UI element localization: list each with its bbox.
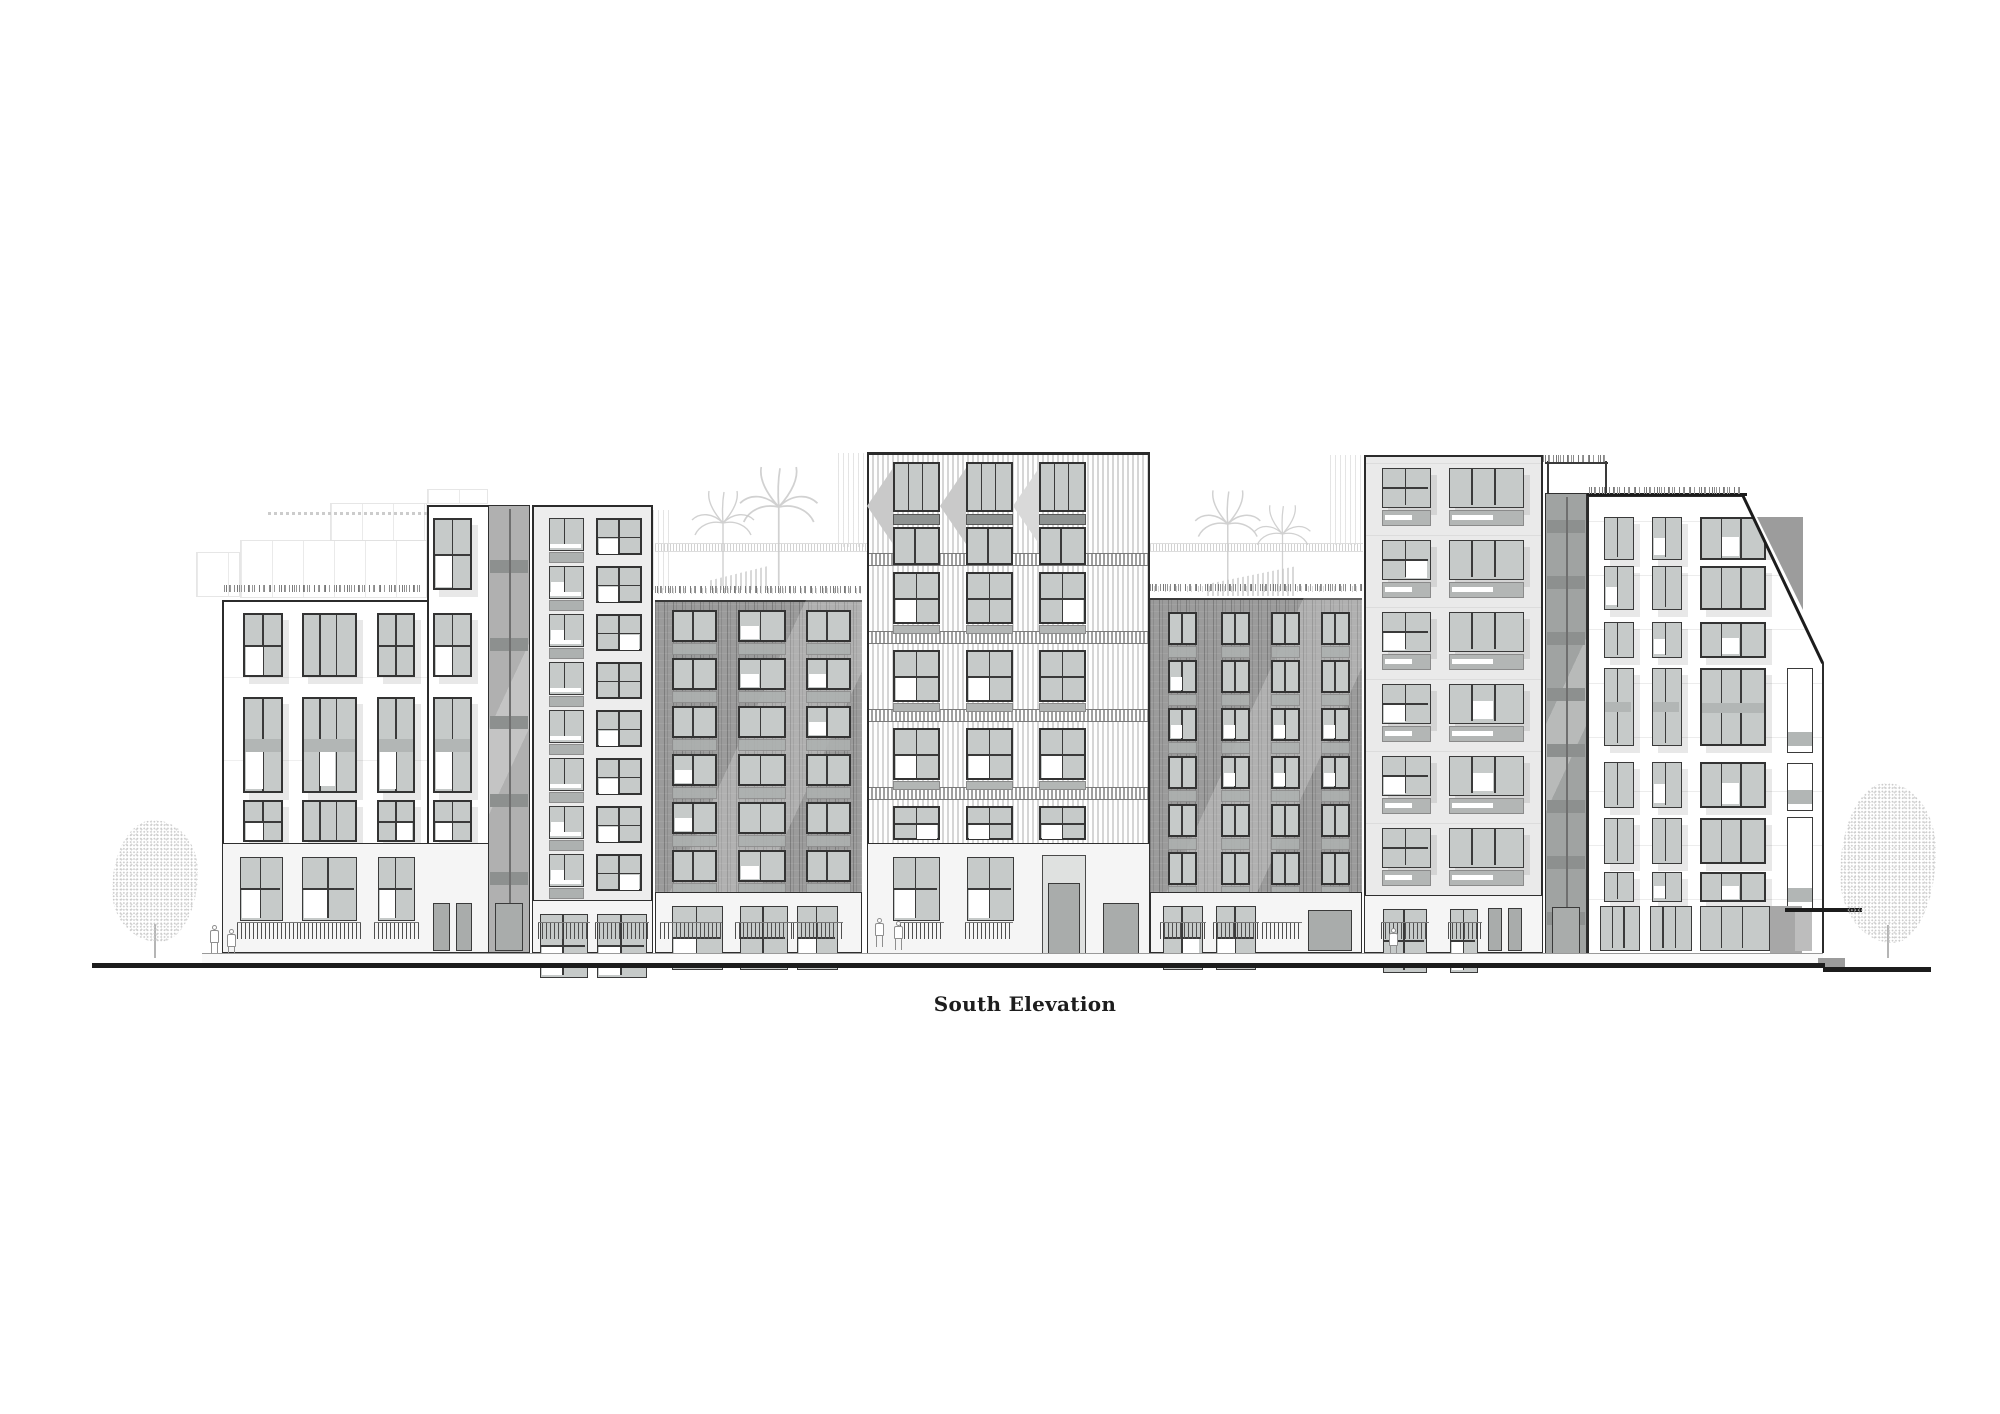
balcony-band <box>1449 726 1524 742</box>
window <box>1168 852 1197 885</box>
window <box>738 610 786 642</box>
window <box>1168 756 1197 789</box>
window-pane <box>1665 873 1667 899</box>
window <box>1039 462 1086 512</box>
window-pane <box>550 832 581 836</box>
balcony-slot <box>1385 515 1412 520</box>
window <box>549 806 584 839</box>
window <box>1221 612 1250 645</box>
window-pane <box>809 722 826 735</box>
window <box>549 854 584 887</box>
window-spandrel <box>1271 646 1300 658</box>
window-spandrel <box>806 835 851 847</box>
window-spandrel <box>1271 790 1300 802</box>
window-pane <box>1665 623 1667 655</box>
window-pane <box>1334 662 1336 691</box>
window-pane <box>436 556 452 587</box>
window-spandrel <box>1221 694 1250 706</box>
window-pane <box>1234 854 1236 883</box>
window <box>893 857 940 921</box>
window-pane <box>1612 907 1614 948</box>
window-pane <box>760 756 762 784</box>
core-mullion <box>509 509 511 949</box>
window-spandrel <box>672 787 717 799</box>
window-spandrel <box>1168 742 1197 754</box>
ghost-palm-tree <box>735 457 823 588</box>
window-band <box>893 514 940 525</box>
window-pane <box>1041 676 1084 678</box>
window-pane <box>692 708 694 736</box>
window-spandrel <box>1321 790 1350 802</box>
window-sill-band <box>966 703 1013 712</box>
window-spandrel <box>1221 646 1250 658</box>
window <box>806 754 851 786</box>
window-pane <box>1471 829 1473 865</box>
window-spandrel <box>1221 790 1250 802</box>
window-pane <box>1665 518 1667 557</box>
window-pane <box>1617 567 1619 607</box>
window-pane <box>981 464 983 510</box>
window-pane <box>1494 757 1496 793</box>
window-spandrel <box>738 739 786 751</box>
window <box>966 806 1013 840</box>
window-pane <box>741 866 759 879</box>
window-spandrel <box>806 787 851 799</box>
balcony-slot <box>1385 587 1412 592</box>
window-pane <box>908 464 910 510</box>
window <box>1449 540 1524 580</box>
window <box>596 518 642 555</box>
window-pane <box>1654 639 1665 654</box>
window-pane <box>692 852 694 880</box>
sidewalk-strip <box>202 953 1823 963</box>
window-pane <box>826 660 828 688</box>
window-sill-band <box>966 625 1013 634</box>
window <box>893 806 940 840</box>
window <box>1221 852 1250 885</box>
window <box>1449 612 1524 652</box>
window-pane <box>760 660 762 688</box>
window <box>1271 612 1300 645</box>
window-spandrel <box>672 643 717 655</box>
window-spandrel <box>738 835 786 847</box>
balcony-slot <box>1452 587 1493 592</box>
window-pane <box>968 598 1011 600</box>
entrance-door <box>1488 908 1502 951</box>
balcony-band <box>1449 582 1524 598</box>
person-part <box>210 930 219 943</box>
street-fence <box>237 922 301 939</box>
window-pane <box>741 674 759 687</box>
window-pane <box>435 739 470 752</box>
window-spandrel <box>549 552 584 563</box>
window-pane <box>969 890 989 918</box>
street-fence <box>735 922 793 939</box>
window-spandrel <box>549 888 584 899</box>
ground-line <box>92 963 1825 968</box>
window-pane <box>1284 614 1286 643</box>
window-pane <box>599 779 618 794</box>
window <box>596 710 642 747</box>
window-pane <box>379 645 413 647</box>
window-spandrel <box>1221 838 1250 850</box>
ghost-outline <box>330 503 427 541</box>
window <box>738 706 786 738</box>
window-pane <box>1181 758 1183 787</box>
window <box>302 613 357 677</box>
window <box>1449 468 1524 508</box>
window <box>1271 756 1300 789</box>
window <box>1700 566 1766 610</box>
balcony-slot <box>1452 659 1493 664</box>
window <box>377 697 415 793</box>
window-band <box>1039 514 1086 525</box>
window <box>1271 708 1300 741</box>
window <box>377 613 415 677</box>
window-pane <box>1060 529 1062 563</box>
window-pane <box>1788 888 1812 902</box>
window <box>433 518 472 590</box>
window-pane <box>1494 541 1496 577</box>
window <box>1168 804 1197 837</box>
window-pane <box>1042 756 1062 778</box>
window <box>1600 906 1640 951</box>
window-spandrel <box>738 691 786 703</box>
ghost-outline <box>427 489 488 504</box>
window <box>596 758 642 795</box>
balcony-slot <box>1452 515 1493 520</box>
window-pane <box>896 756 916 778</box>
window-pane <box>1224 725 1235 738</box>
bay-chevron <box>1013 468 1039 544</box>
window-pane <box>246 647 263 675</box>
window <box>1271 852 1300 885</box>
window-pane <box>1675 907 1677 948</box>
window-pane <box>1494 829 1496 865</box>
window <box>302 697 357 793</box>
window <box>302 800 357 842</box>
window-pane <box>550 640 581 644</box>
window-pane <box>1654 538 1665 556</box>
window-pane <box>599 827 618 842</box>
window <box>1221 660 1250 693</box>
person-part <box>875 923 884 936</box>
window-pane <box>1740 874 1742 900</box>
window <box>672 610 717 642</box>
window-spandrel <box>1271 742 1300 754</box>
window <box>1650 906 1692 951</box>
window-pane <box>1623 907 1625 948</box>
window-pane <box>1662 907 1664 948</box>
window-spandrel <box>806 643 851 655</box>
window-spandrel <box>549 600 584 611</box>
window-pane <box>380 890 395 918</box>
window-pane <box>1617 873 1619 899</box>
window-pane <box>1324 773 1335 786</box>
window-pane <box>1740 820 1742 862</box>
window <box>1382 828 1431 868</box>
window-pane <box>550 544 581 548</box>
window <box>1700 762 1766 808</box>
window-pane <box>1740 764 1742 806</box>
window <box>1652 762 1682 808</box>
window-pane <box>1334 614 1336 643</box>
window-spandrel <box>806 691 851 703</box>
window-spandrel <box>549 840 584 851</box>
window <box>966 572 1013 624</box>
entrance-door <box>1508 908 1522 951</box>
window-pane <box>599 539 618 554</box>
window <box>1604 566 1634 610</box>
window-pane <box>1334 854 1336 883</box>
window-pane <box>1181 806 1183 835</box>
entrance-door <box>433 903 450 951</box>
balcony-slot <box>1385 659 1412 664</box>
window-spandrel <box>1321 838 1350 850</box>
balcony-slot <box>1452 731 1493 736</box>
window-pane <box>1384 705 1405 722</box>
window-pane <box>922 464 924 510</box>
window-pane <box>896 600 916 622</box>
window-pane <box>1274 725 1285 738</box>
window-sill-band <box>893 625 940 634</box>
core-mullion <box>1566 497 1568 953</box>
window <box>1271 660 1300 693</box>
window-pane <box>809 674 826 687</box>
window <box>966 527 1013 565</box>
roof-vegetation <box>1589 487 1741 494</box>
window-spandrel <box>549 696 584 707</box>
window <box>1604 517 1634 560</box>
window-pane <box>1605 702 1631 712</box>
balcony-band <box>1449 870 1524 886</box>
street-fence <box>965 922 1013 939</box>
window <box>1221 804 1250 837</box>
window-pane <box>436 823 452 840</box>
window <box>1168 708 1197 741</box>
window <box>433 800 472 842</box>
balcony-slot <box>1452 803 1493 808</box>
window <box>893 527 940 565</box>
window <box>966 728 1013 780</box>
window-pane <box>969 825 989 839</box>
window <box>549 614 584 647</box>
window-pane <box>1740 624 1742 656</box>
window <box>1168 612 1197 645</box>
window-pane <box>1324 725 1335 738</box>
balcony-band <box>1382 510 1431 526</box>
street-fence <box>1262 922 1302 939</box>
window-spandrel <box>672 835 717 847</box>
window-pane <box>1384 777 1405 794</box>
window <box>1039 806 1086 840</box>
window-spandrel <box>1168 646 1197 658</box>
window-spandrel <box>806 739 851 751</box>
window <box>1221 708 1250 741</box>
window <box>1039 527 1086 565</box>
person-part <box>895 939 902 950</box>
window-spandrel <box>549 744 584 755</box>
window-spandrel <box>672 739 717 751</box>
window-pane <box>1181 854 1183 883</box>
window-pane <box>550 784 581 788</box>
window-pane <box>1042 825 1062 839</box>
window <box>302 857 357 921</box>
person-part <box>894 926 903 939</box>
window-spandrel <box>1321 646 1350 658</box>
ghost-railing-scribble <box>268 512 430 515</box>
window-pane <box>1406 561 1426 578</box>
window-pane <box>914 529 916 563</box>
street-fence <box>1213 922 1259 939</box>
window-pane <box>336 802 338 840</box>
window <box>967 857 1014 921</box>
window-spandrel <box>738 787 786 799</box>
window-pane <box>1471 469 1473 505</box>
window-pane <box>1606 587 1617 605</box>
window <box>240 857 283 921</box>
window-pane <box>895 890 915 918</box>
window <box>1321 756 1350 789</box>
window-pane <box>826 804 828 832</box>
roof-vegetation <box>224 585 424 592</box>
window-pane <box>242 890 260 918</box>
window <box>1604 762 1634 808</box>
window <box>1652 517 1682 560</box>
window-pane <box>1054 464 1056 510</box>
window-pane <box>995 464 997 510</box>
window <box>1700 906 1770 951</box>
balcony-band <box>1449 798 1524 814</box>
window-spandrel <box>1221 742 1250 754</box>
window <box>1382 684 1431 724</box>
window-pane <box>760 708 762 736</box>
window-pane <box>1722 638 1739 654</box>
window <box>893 728 940 780</box>
window <box>1652 668 1682 746</box>
window-pane <box>1234 614 1236 643</box>
window <box>596 566 642 603</box>
window <box>433 697 472 793</box>
window-pane <box>760 804 762 832</box>
ghost-outline <box>1330 455 1363 545</box>
window-pane <box>1721 820 1723 862</box>
pergola-post <box>1547 461 1549 493</box>
window-pane <box>741 626 759 639</box>
window-spandrel <box>1321 742 1350 754</box>
balcony-slot <box>1385 803 1412 808</box>
window <box>1382 756 1431 796</box>
window <box>1382 468 1431 508</box>
balcony-slot <box>1385 875 1412 880</box>
window-pane <box>550 736 581 740</box>
window <box>1604 818 1634 864</box>
window <box>1449 684 1524 724</box>
drawing-title: South Elevation <box>905 992 1145 1016</box>
window-pane <box>1334 806 1336 835</box>
window <box>672 850 717 882</box>
window-pane <box>550 592 581 596</box>
canopy-support <box>1795 912 1812 951</box>
window-pane <box>826 612 828 640</box>
window <box>1700 622 1766 658</box>
street-fence <box>300 922 361 939</box>
window-pane <box>1653 702 1679 712</box>
window-pane <box>987 529 989 563</box>
person-part <box>227 934 236 947</box>
window-pane <box>304 890 327 918</box>
window <box>596 614 642 651</box>
window-pane <box>1665 819 1667 861</box>
street-fence <box>660 922 722 939</box>
window <box>1652 818 1682 864</box>
window <box>243 697 283 793</box>
window <box>1652 566 1682 610</box>
window-pane <box>246 747 263 789</box>
window-pane <box>675 770 692 783</box>
bay-chevron <box>940 468 966 544</box>
balcony-band <box>1382 582 1431 598</box>
window-pane <box>1654 886 1665 898</box>
window <box>1787 817 1813 909</box>
window-pane <box>1284 854 1286 883</box>
window <box>377 800 415 842</box>
window-pane <box>1494 469 1496 505</box>
window-spandrel <box>1321 694 1350 706</box>
ground-line <box>1823 967 1931 972</box>
window <box>1382 612 1431 652</box>
window-pane <box>1473 773 1493 791</box>
window-pane <box>1473 701 1493 719</box>
window-pane <box>675 818 692 831</box>
window-spandrel <box>549 792 584 803</box>
window-pane <box>1384 633 1405 650</box>
window-pane <box>1721 568 1723 608</box>
window <box>1604 872 1634 902</box>
window-spandrel <box>738 643 786 655</box>
entrance-door <box>1103 903 1139 955</box>
window-pane <box>304 739 355 752</box>
window-pane <box>436 747 452 789</box>
window-pane <box>319 615 321 675</box>
window-pane <box>319 802 321 840</box>
window-sill-band <box>1039 625 1086 634</box>
balcony-band <box>1382 726 1431 742</box>
street-tree-left <box>112 820 198 942</box>
window-pane <box>1383 487 1428 489</box>
window-pane <box>896 678 916 700</box>
window-pane <box>598 681 640 683</box>
window-pane <box>397 823 412 840</box>
street-fence <box>538 922 590 939</box>
window-pane <box>1788 790 1812 804</box>
window <box>672 706 717 738</box>
window <box>893 462 940 512</box>
window <box>1382 540 1431 580</box>
window <box>806 802 851 834</box>
window-pane <box>1617 819 1619 861</box>
window <box>549 518 584 551</box>
window-sill-band <box>893 703 940 712</box>
window <box>549 566 584 599</box>
window <box>1321 852 1350 885</box>
window-pane <box>760 852 762 880</box>
window <box>596 662 642 699</box>
window-pane <box>1654 784 1665 803</box>
window-pane <box>620 635 639 650</box>
window-pane <box>379 739 413 752</box>
window <box>672 658 717 690</box>
